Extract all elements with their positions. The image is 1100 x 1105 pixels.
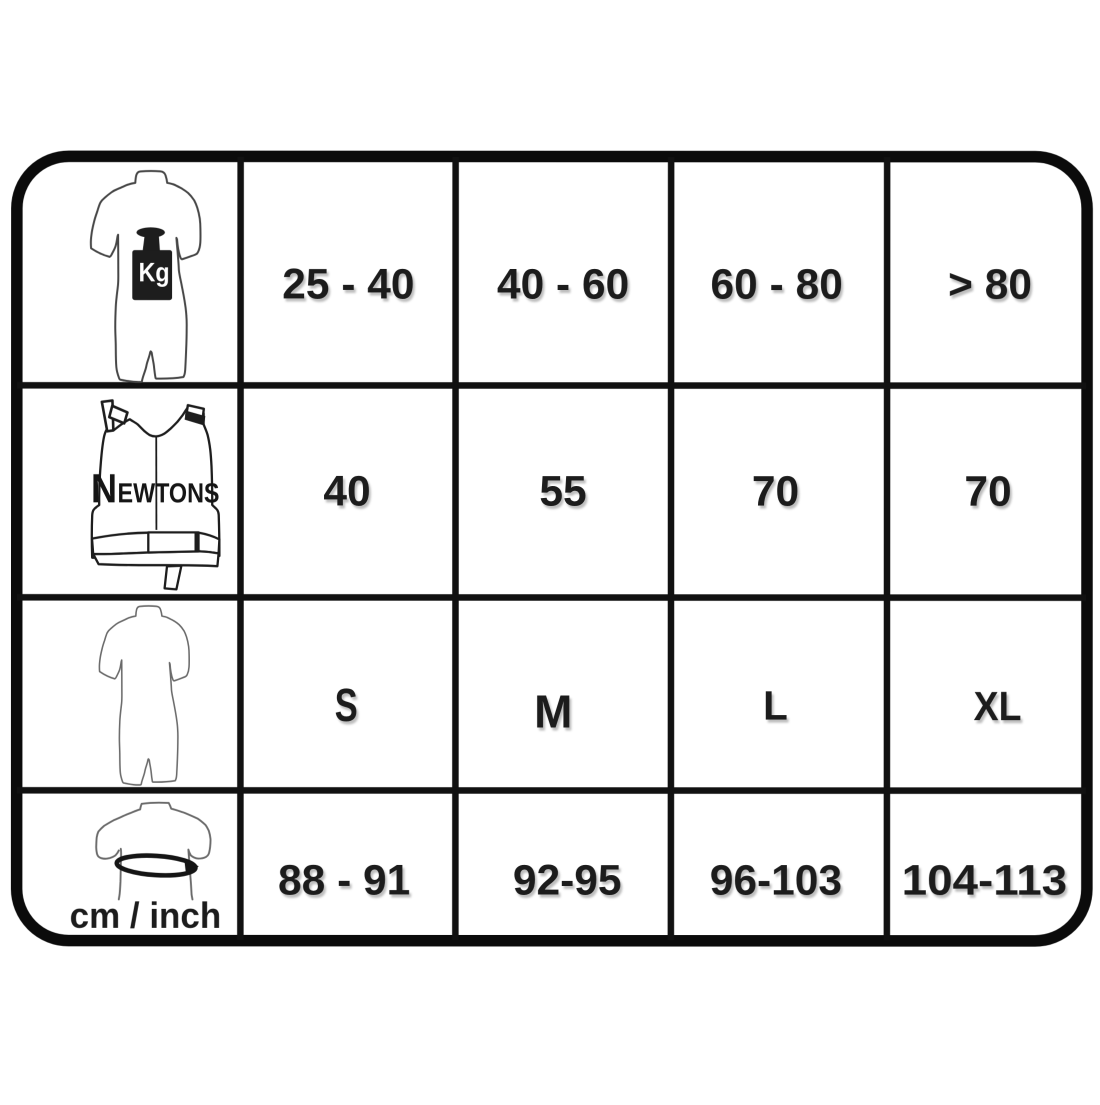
svg-text:25 - 40: 25 - 40 bbox=[282, 261, 414, 308]
svg-text:70: 70 bbox=[964, 469, 1011, 516]
svg-text:96-103: 96-103 bbox=[710, 858, 842, 905]
svg-text:55: 55 bbox=[539, 468, 586, 515]
svg-text:EWTONS: EWTONS bbox=[118, 477, 220, 508]
svg-text:60 - 80: 60 - 80 bbox=[711, 262, 843, 309]
svg-text:cm / inch: cm / inch bbox=[70, 895, 222, 936]
svg-text:M: M bbox=[534, 685, 572, 737]
svg-text:XL: XL bbox=[974, 683, 1022, 729]
svg-text:S: S bbox=[335, 679, 358, 731]
svg-text:104-113: 104-113 bbox=[902, 858, 1068, 905]
svg-text:L: L bbox=[763, 683, 788, 729]
svg-text:70: 70 bbox=[752, 469, 799, 516]
svg-text:N: N bbox=[91, 465, 117, 511]
svg-text:92-95: 92-95 bbox=[513, 857, 622, 904]
svg-text:88 - 91: 88 - 91 bbox=[278, 857, 410, 904]
svg-text:40: 40 bbox=[323, 468, 370, 515]
svg-text:Kg: Kg bbox=[139, 257, 170, 287]
svg-text:> 80: > 80 bbox=[948, 262, 1032, 309]
svg-text:40 - 60: 40 - 60 bbox=[497, 261, 629, 308]
